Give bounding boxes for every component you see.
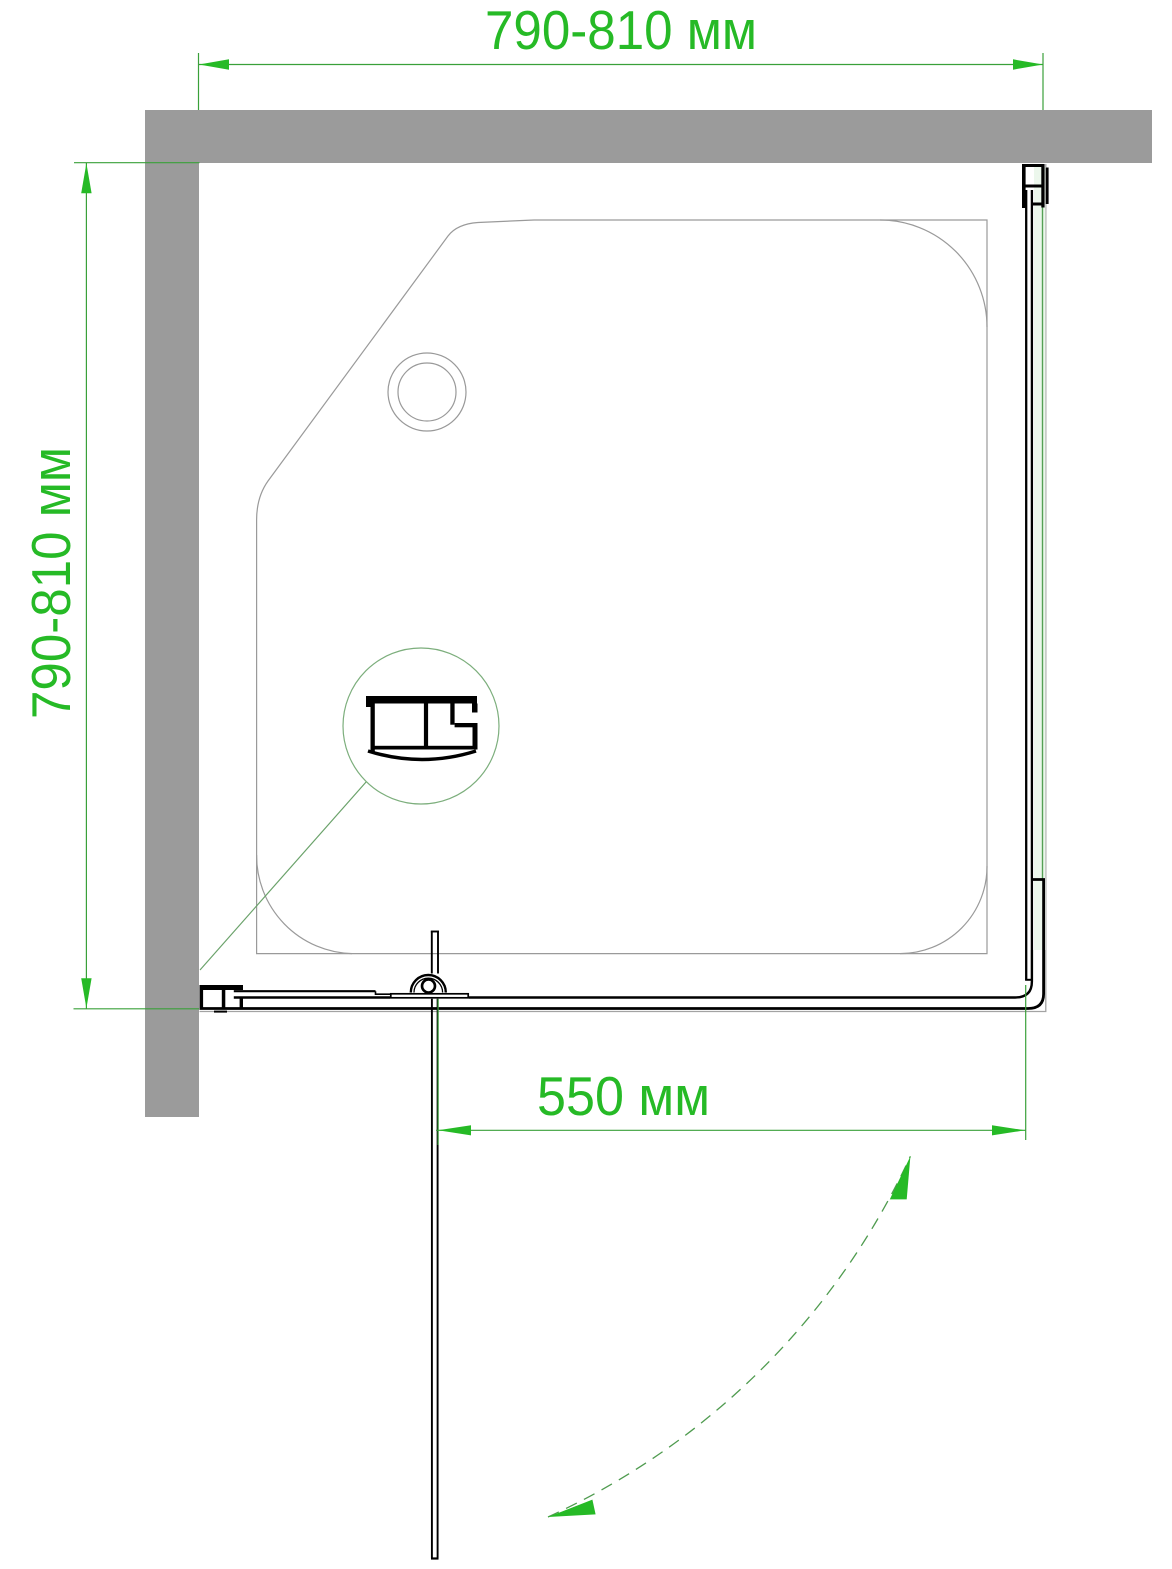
svg-text:550 мм: 550 мм — [537, 1065, 710, 1127]
svg-text:790-810 мм: 790-810 мм — [20, 447, 82, 719]
svg-text:790-810 мм: 790-810 мм — [485, 0, 757, 61]
